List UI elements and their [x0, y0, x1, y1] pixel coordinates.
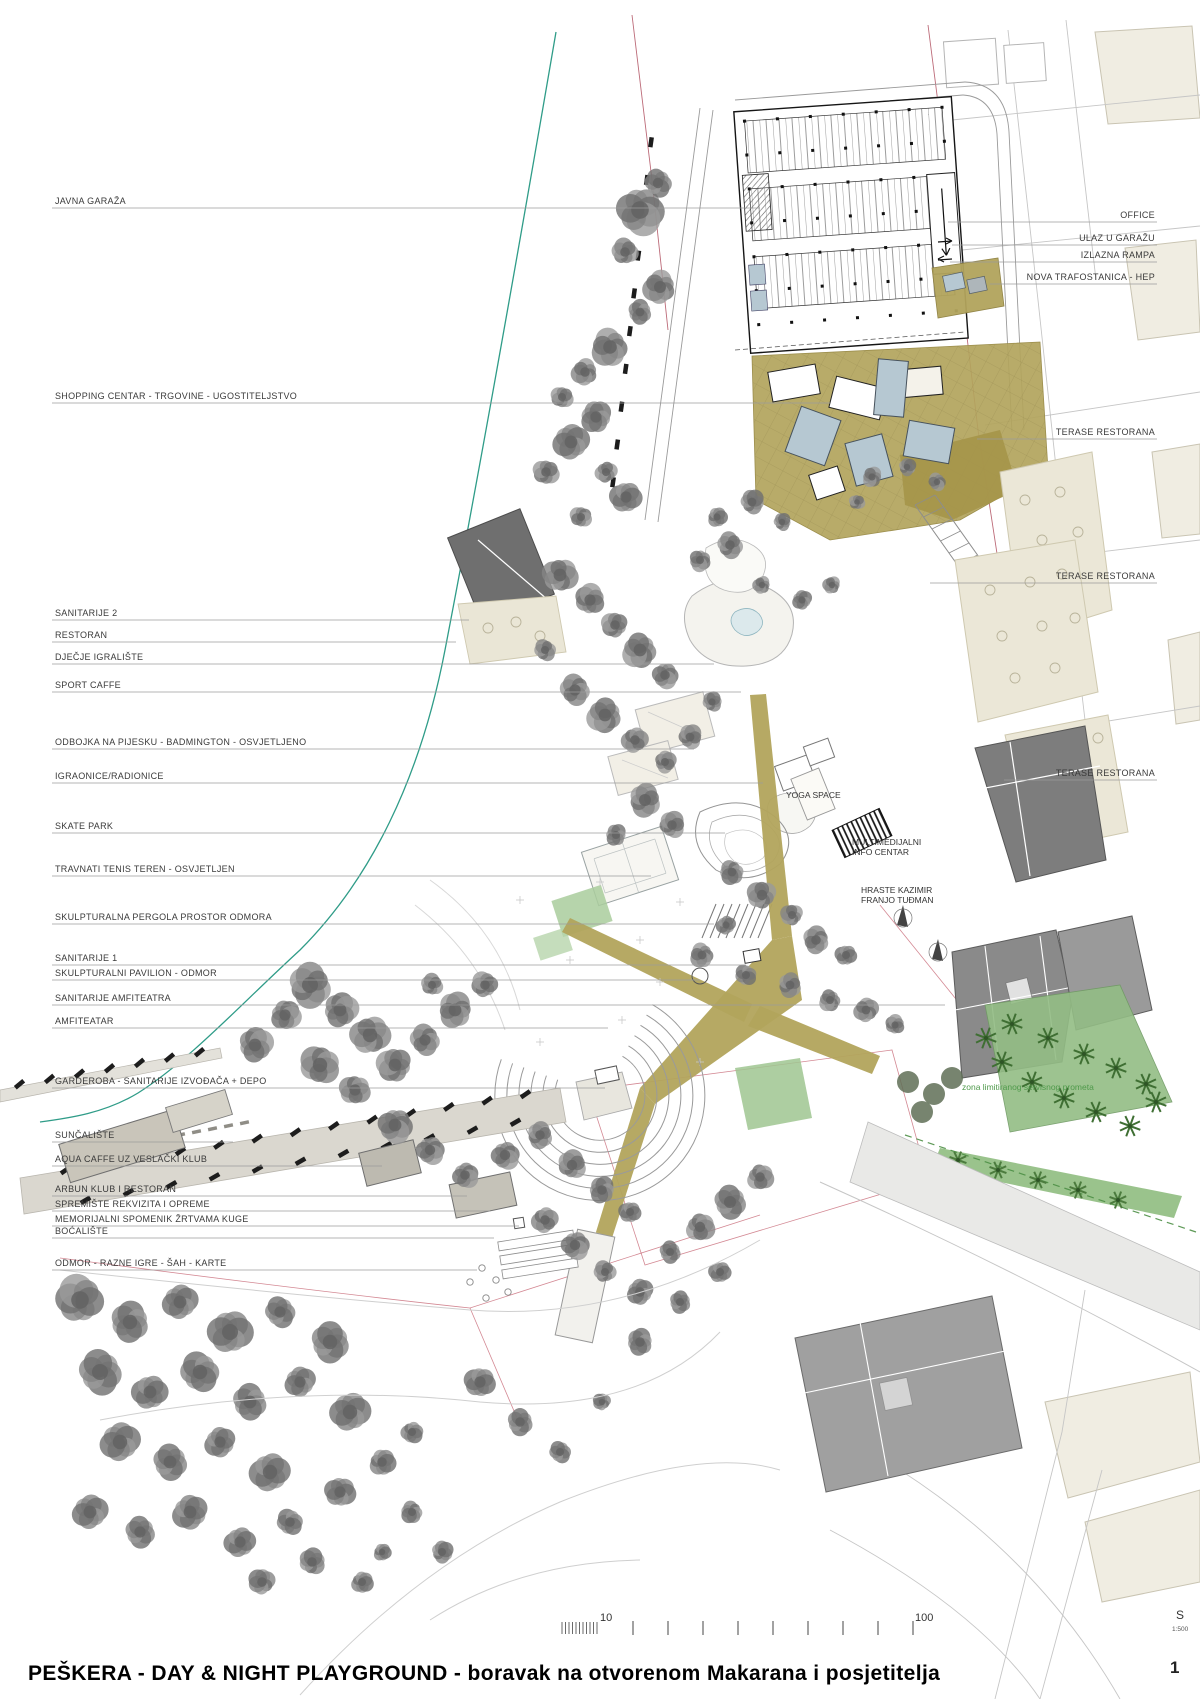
- plan-annotation: ODMOR - RAZNE IGRE - ŠAH - KARTE: [55, 1258, 226, 1268]
- plan-annotation: MEMORIJALNI SPOMENIK ŽRTVAMA KUGE: [55, 1214, 249, 1224]
- plan-annotation: SPREMIŠTE REKVIZITA I OPREME: [55, 1199, 210, 1209]
- plan-annotation: SKATE PARK: [55, 821, 113, 831]
- plan-annotation: SUNČALIŠTE: [55, 1130, 115, 1140]
- plan-annotation: IGRAONICE/RADIONICE: [55, 771, 164, 781]
- plan-annotation: NOVA TRAFOSTANICA - HEP: [1027, 272, 1155, 282]
- plan-annotation: SANITARIJE AMFITEATRA: [55, 993, 171, 1003]
- plan-annotation: AMFITEATAR: [55, 1016, 114, 1026]
- page-number: 1: [1170, 1658, 1179, 1678]
- plan-annotation: GARDEROBA - SANITARIJE IZVOĐAČA + DEPO: [55, 1076, 267, 1086]
- garage-building: [734, 97, 968, 354]
- plan-annotation: SKULPTURALNA PERGOLA PROSTOR ODMORA: [55, 912, 272, 922]
- scale-label-10: 10: [600, 1612, 612, 1624]
- plan-annotation: SANITARIJE 1: [55, 953, 117, 963]
- plan-annotation: YOGA SPACE: [786, 790, 841, 800]
- plan-annotation: TERASE RESTORANA: [1056, 768, 1155, 778]
- plan-annotation: SKULPTURALNI PAVILION - ODMOR: [55, 968, 217, 978]
- plan-annotation: ARBUN KLUB I RESTORAN: [55, 1184, 176, 1194]
- plan-annotation: SANITARIJE 2: [55, 608, 117, 618]
- plan-annotation: JAVNA GARAŽA: [55, 196, 126, 206]
- north-indicator: S: [1176, 1608, 1184, 1622]
- annotation-line1: HRASTE KAZIMIR: [861, 885, 934, 895]
- plan-annotation: SHOPPING CENTAR - TRGOVINE - UGOSTITELJS…: [55, 391, 297, 401]
- plan-annotation: BOĆALIŠTE: [55, 1226, 108, 1236]
- site-plan-drawing: [0, 0, 1200, 1699]
- annotation-line2: INFO CENTAR: [852, 847, 921, 857]
- annotation-line1: MULTIMEDIJALNI: [852, 837, 921, 847]
- plan-annotation: OFFICE: [1120, 210, 1155, 220]
- plan-annotation: SPORT CAFFE: [55, 680, 121, 690]
- plan-annotation: TRAVNATI TENIS TEREN - OSVJETLJEN: [55, 864, 235, 874]
- scale-ratio: 1:500: [1172, 1626, 1188, 1633]
- plan-annotation: zona limitiranog servisnog prometa: [962, 1082, 1094, 1092]
- sheet-title: PEŠKERA - DAY & NIGHT PLAYGROUND - borav…: [28, 1662, 940, 1686]
- plan-annotation: RESTORAN: [55, 630, 107, 640]
- plan-annotation: TERASE RESTORANA: [1056, 571, 1155, 581]
- plan-annotation: ULAZ U GARAŽU: [1079, 233, 1155, 243]
- plan-annotation: HRASTE KAZIMIRFRANJO TUĐMAN: [861, 885, 934, 905]
- plan-annotation: IZLAZNA RAMPA: [1081, 250, 1155, 260]
- annotation-line2: FRANJO TUĐMAN: [861, 895, 934, 905]
- plan-annotation: DJEČJE IGRALIŠTE: [55, 652, 143, 662]
- scale-label-100: 100: [915, 1612, 933, 1624]
- plan-annotation: AQUA CAFFE UZ VESLAČKI KLUB: [55, 1154, 207, 1164]
- plan-annotation: ODBOJKA NA PIJESKU - BADMINGTON - OSVJET…: [55, 737, 306, 747]
- plan-annotation: TERASE RESTORANA: [1056, 427, 1155, 437]
- site-plan-sheet: JAVNA GARAŽASHOPPING CENTAR - TRGOVINE -…: [0, 0, 1200, 1699]
- plan-annotation: MULTIMEDIJALNIINFO CENTAR: [852, 837, 921, 857]
